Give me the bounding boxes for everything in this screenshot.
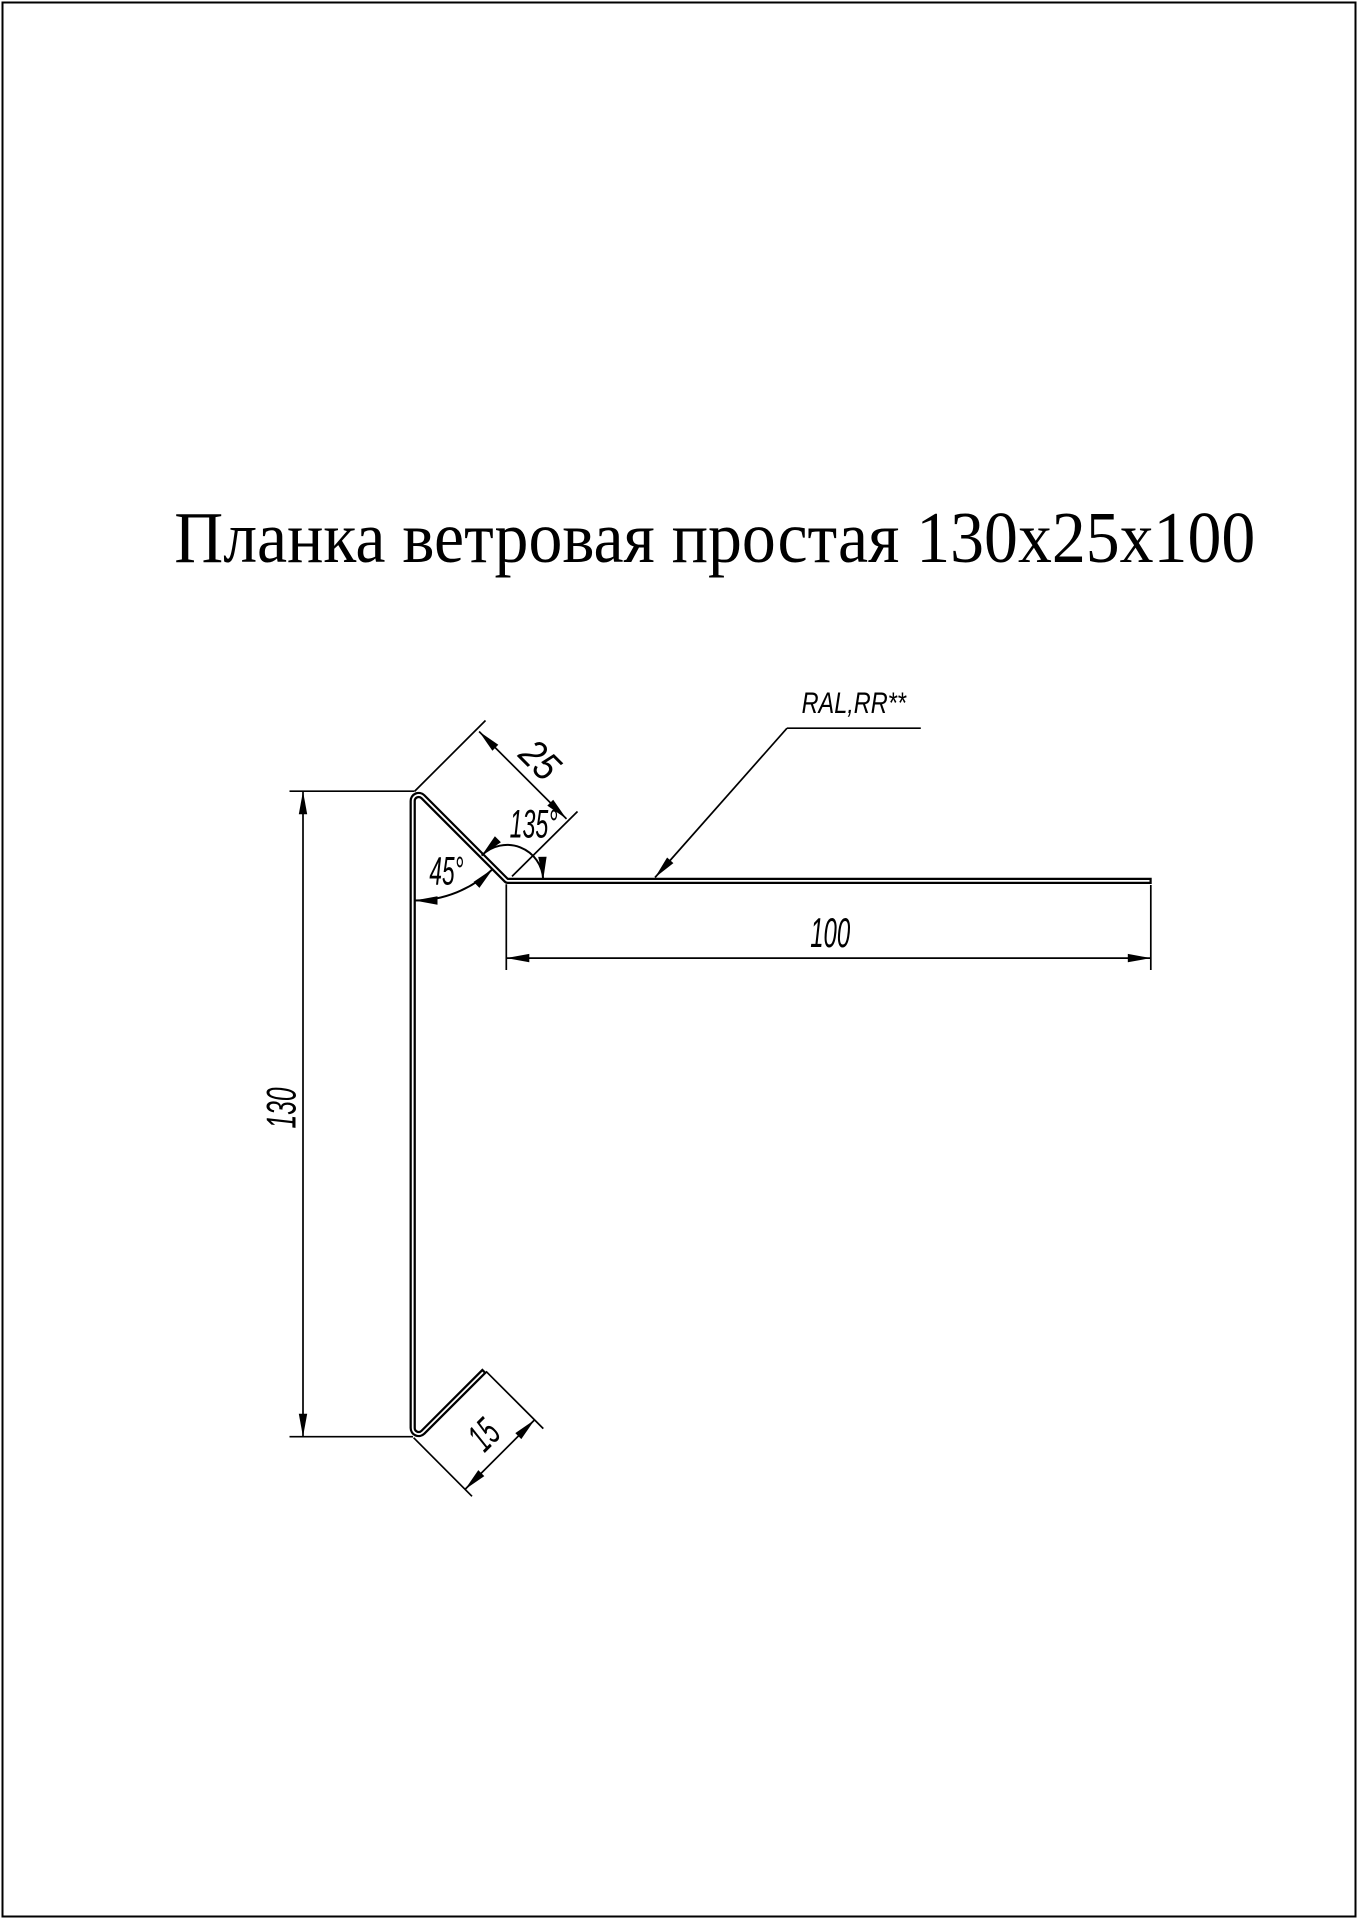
svg-text:45°: 45° [429,849,463,893]
svg-text:RAL,RR**: RAL,RR** [802,687,907,720]
svg-text:Планка ветровая простая 130х25: Планка ветровая простая 130х25х100 [174,497,1255,578]
svg-text:130: 130 [258,1087,305,1128]
svg-text:100: 100 [810,909,850,956]
svg-text:135°: 135° [510,802,558,846]
